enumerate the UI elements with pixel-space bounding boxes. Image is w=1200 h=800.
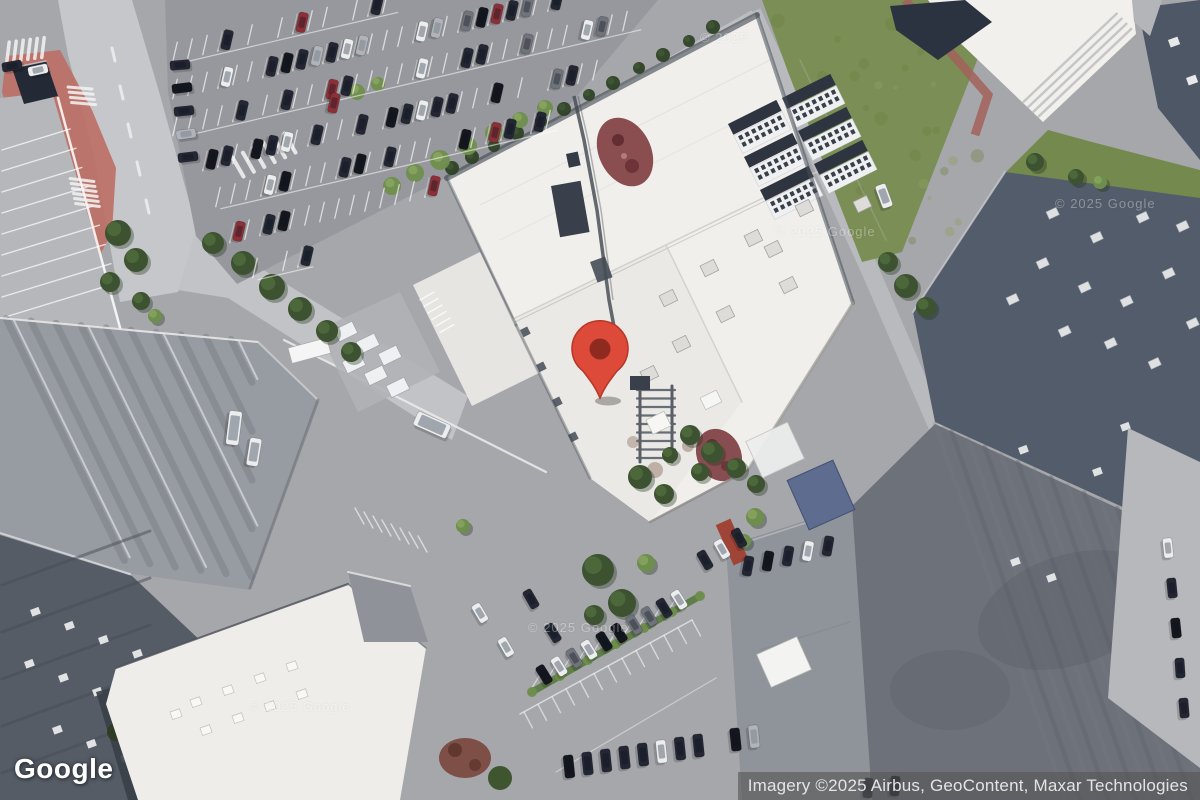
map-viewport[interactable]: © 2025© 2025 Google© 2025 Google© 2025 G…	[0, 0, 1200, 800]
attribution-bar: Imagery ©2025 Airbus, GeoContent, Maxar …	[738, 772, 1200, 800]
location-pin-marker[interactable]	[540, 288, 660, 408]
imagery-watermark: © 2025 Google	[250, 699, 351, 714]
google-logo[interactable]: Google	[14, 753, 113, 785]
imagery-watermark: © 2025 Google	[775, 224, 876, 239]
pin-shadow	[595, 397, 621, 406]
imagery-watermark: © 2025	[700, 30, 748, 45]
attribution-text: Imagery ©2025 Airbus, GeoContent, Maxar …	[748, 776, 1188, 796]
imagery-watermark: © 2025 Google	[1055, 196, 1156, 211]
imagery-watermark: © 2025 Google	[528, 620, 629, 635]
pin-inner-dot	[590, 339, 611, 360]
